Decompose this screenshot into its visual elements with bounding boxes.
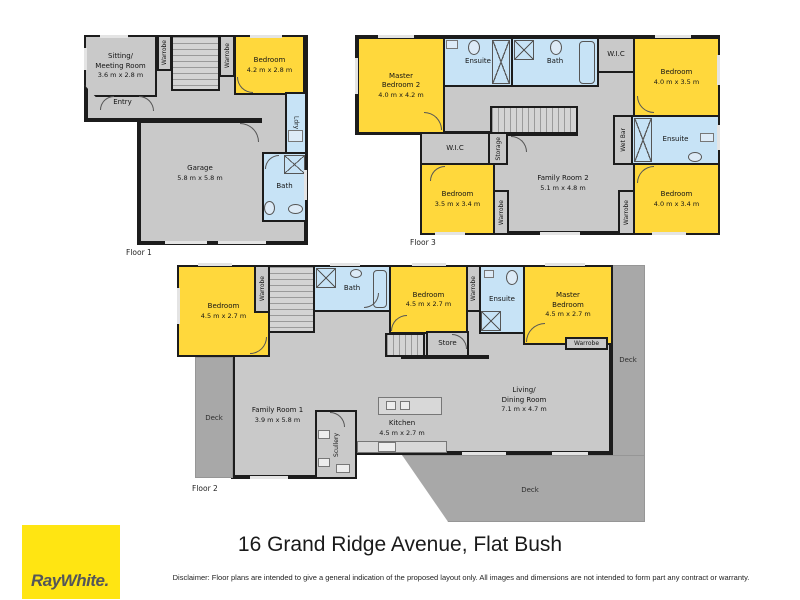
room-laundry: Ldry — [285, 92, 307, 154]
disclaimer-text: Disclaimer: Floor plans are intended to … — [130, 573, 792, 582]
room-dims: 3.5 m x 3.4 m — [435, 200, 480, 208]
shower-icon — [284, 155, 305, 174]
window — [545, 263, 585, 266]
floor1-label: Floor 1 — [126, 248, 152, 257]
room-label: Living/ Dining Room — [502, 386, 547, 405]
laundry-tub-icon — [288, 130, 303, 142]
window — [717, 55, 720, 85]
room-label: Wet Bar — [620, 128, 627, 152]
room-label: Bedroom — [442, 190, 474, 199]
room-label: Bedroom — [254, 56, 286, 65]
room-dims: 4.5 m x 2.7 m — [406, 300, 451, 308]
deck-bottom-label: Deck — [505, 484, 555, 496]
window — [355, 58, 358, 94]
room-label: Warrobe — [623, 200, 630, 225]
window — [412, 263, 446, 266]
floor3-label: Floor 3 — [410, 238, 436, 247]
sink-icon — [386, 401, 396, 410]
room-wic-left: W.I.C — [420, 132, 490, 165]
window — [198, 263, 232, 266]
kitchen-counter — [357, 441, 447, 453]
toilet-icon — [550, 40, 562, 55]
room-label: Scullery — [333, 433, 340, 457]
window — [717, 125, 720, 150]
room-label: Garage — [187, 164, 213, 173]
room-label: Family Room 1 — [252, 406, 303, 415]
room-storage: Storage — [488, 132, 508, 165]
shower-icon — [316, 268, 336, 288]
room-label: W.I.C — [607, 50, 625, 59]
scullery-bench-icon — [336, 464, 350, 473]
room-label: Warrobe — [161, 40, 168, 65]
room-dims: 4.0 m x 4.2 m — [378, 91, 423, 99]
room-sitting-meeting: Sitting/ Meeting Room 3.6 m x 2.8 m — [84, 35, 157, 97]
window — [304, 170, 307, 200]
room-wardrobe-f3-mid: Warrobe — [493, 190, 509, 235]
wall-segment — [401, 355, 489, 359]
shower-icon — [514, 40, 534, 60]
room-dims: 3.9 m x 5.8 m — [255, 416, 300, 424]
room-wardrobe-b: Warrobe — [219, 35, 235, 77]
room-label: Bath — [276, 182, 292, 191]
stairs-floor1 — [171, 35, 220, 91]
deck-left-label: Deck — [196, 412, 232, 424]
room-wic-top: W.I.C — [597, 37, 635, 73]
room-living-dining: Living/ Dining Room 7.1 m x 4.7 m — [478, 383, 570, 417]
stairs-floor2-upper — [385, 333, 425, 357]
window — [540, 232, 580, 235]
scullery-sink-icon — [318, 430, 330, 439]
floor-plan-page: Sitting/ Meeting Room 3.6 m x 2.8 m Warr… — [0, 0, 800, 600]
window — [177, 288, 180, 324]
outside-patch — [176, 357, 196, 479]
window — [84, 48, 87, 70]
window — [462, 452, 506, 455]
room-dims: 4.5 m x 2.7 m — [545, 310, 590, 318]
room-family-room-1: Family Room 1 3.9 m x 5.8 m — [235, 402, 320, 428]
room-label: Bath — [547, 57, 563, 66]
deck-right-label: Deck — [612, 354, 644, 366]
room-label: Storage — [495, 137, 502, 160]
room-label: Ldry — [293, 116, 300, 129]
room-dims: 4.0 m x 3.5 m — [654, 78, 699, 86]
sink-icon — [264, 201, 275, 215]
floor3-open-patch — [578, 130, 614, 138]
room-label: Warrobe — [574, 340, 599, 347]
stove-icon — [378, 442, 396, 452]
room-dims: 4.5 m x 2.7 m — [201, 312, 246, 320]
raywhite-logo-text: RayWhite. — [22, 571, 109, 599]
room-kitchen: Kitchen 4.5 m x 2.7 m — [368, 418, 436, 438]
room-dims: 7.1 m x 4.7 m — [501, 405, 546, 413]
window — [378, 35, 414, 38]
scullery-bench-icon — [318, 458, 330, 467]
room-dims: 4.5 m x 2.7 m — [379, 429, 424, 437]
shower-icon — [481, 311, 501, 331]
room-label: Ensuite — [465, 57, 491, 66]
window — [552, 452, 588, 455]
room-label: Warrobe — [498, 200, 505, 225]
window — [250, 476, 288, 479]
property-address-title: 16 Grand Ridge Avenue, Flat Bush — [0, 533, 800, 557]
window — [218, 241, 266, 244]
shower-icon — [492, 40, 510, 84]
room-dims: 4.0 m x 3.4 m — [654, 200, 699, 208]
room-label: Bath — [344, 284, 360, 293]
window — [100, 35, 128, 38]
sink-icon — [446, 40, 458, 49]
room-label: Ensuite — [489, 295, 515, 304]
room-label: Warrobe — [259, 276, 266, 301]
sink-icon — [484, 270, 494, 278]
room-label: Bedroom — [661, 190, 693, 199]
room-wet-bar: Wet Bar — [613, 115, 633, 165]
toilet-icon — [288, 204, 303, 214]
sink-icon — [700, 133, 714, 142]
room-label: Sitting/ Meeting Room — [95, 52, 145, 71]
room-label: Bedroom — [208, 302, 240, 311]
hob-icon — [400, 401, 410, 410]
room-wardrobe-f3-right: Warrobe — [618, 190, 635, 235]
bathtub-icon — [579, 41, 595, 84]
room-label: Bedroom — [413, 291, 445, 300]
room-wardrobe-a: Warrobe — [157, 35, 172, 71]
window — [250, 35, 282, 38]
room-dims: 5.8 m x 5.8 m — [177, 174, 222, 182]
room-dims: 3.6 m x 2.8 m — [98, 71, 143, 79]
room-label: Warrobe — [470, 276, 477, 301]
sink-icon — [350, 269, 362, 278]
stairs-floor2 — [268, 265, 315, 333]
room-label: Ensuite — [663, 135, 689, 144]
room-label: Master Bedroom 2 — [382, 72, 420, 91]
room-label: Family Room 2 — [537, 174, 588, 183]
window — [652, 232, 686, 235]
room-garage: Garage 5.8 m x 5.8 m — [160, 160, 240, 186]
toilet-icon — [688, 152, 702, 162]
toilet-icon — [468, 40, 480, 55]
stairs-floor3 — [490, 106, 578, 134]
window — [165, 241, 207, 244]
room-label: Master Bedroom — [552, 291, 584, 310]
floor2-label: Floor 2 — [192, 484, 218, 493]
floor1-hall-patch — [262, 117, 286, 126]
toilet-icon — [506, 270, 518, 285]
shower-icon — [634, 118, 652, 162]
window — [655, 35, 691, 38]
room-wardrobe-master: Warrobe — [565, 337, 608, 350]
room-dims: 5.1 m x 4.8 m — [540, 184, 585, 192]
window — [435, 232, 465, 235]
room-label: W.I.C — [446, 144, 464, 153]
room-label: Warrobe — [224, 43, 231, 68]
window — [330, 263, 360, 266]
room-family-room-2: Family Room 2 5.1 m x 4.8 m — [523, 170, 603, 196]
room-label: Bedroom — [661, 68, 693, 77]
room-dims: 4.2 m x 2.8 m — [247, 66, 292, 74]
room-label: Entry — [113, 98, 132, 107]
room-label: Kitchen — [389, 419, 415, 428]
